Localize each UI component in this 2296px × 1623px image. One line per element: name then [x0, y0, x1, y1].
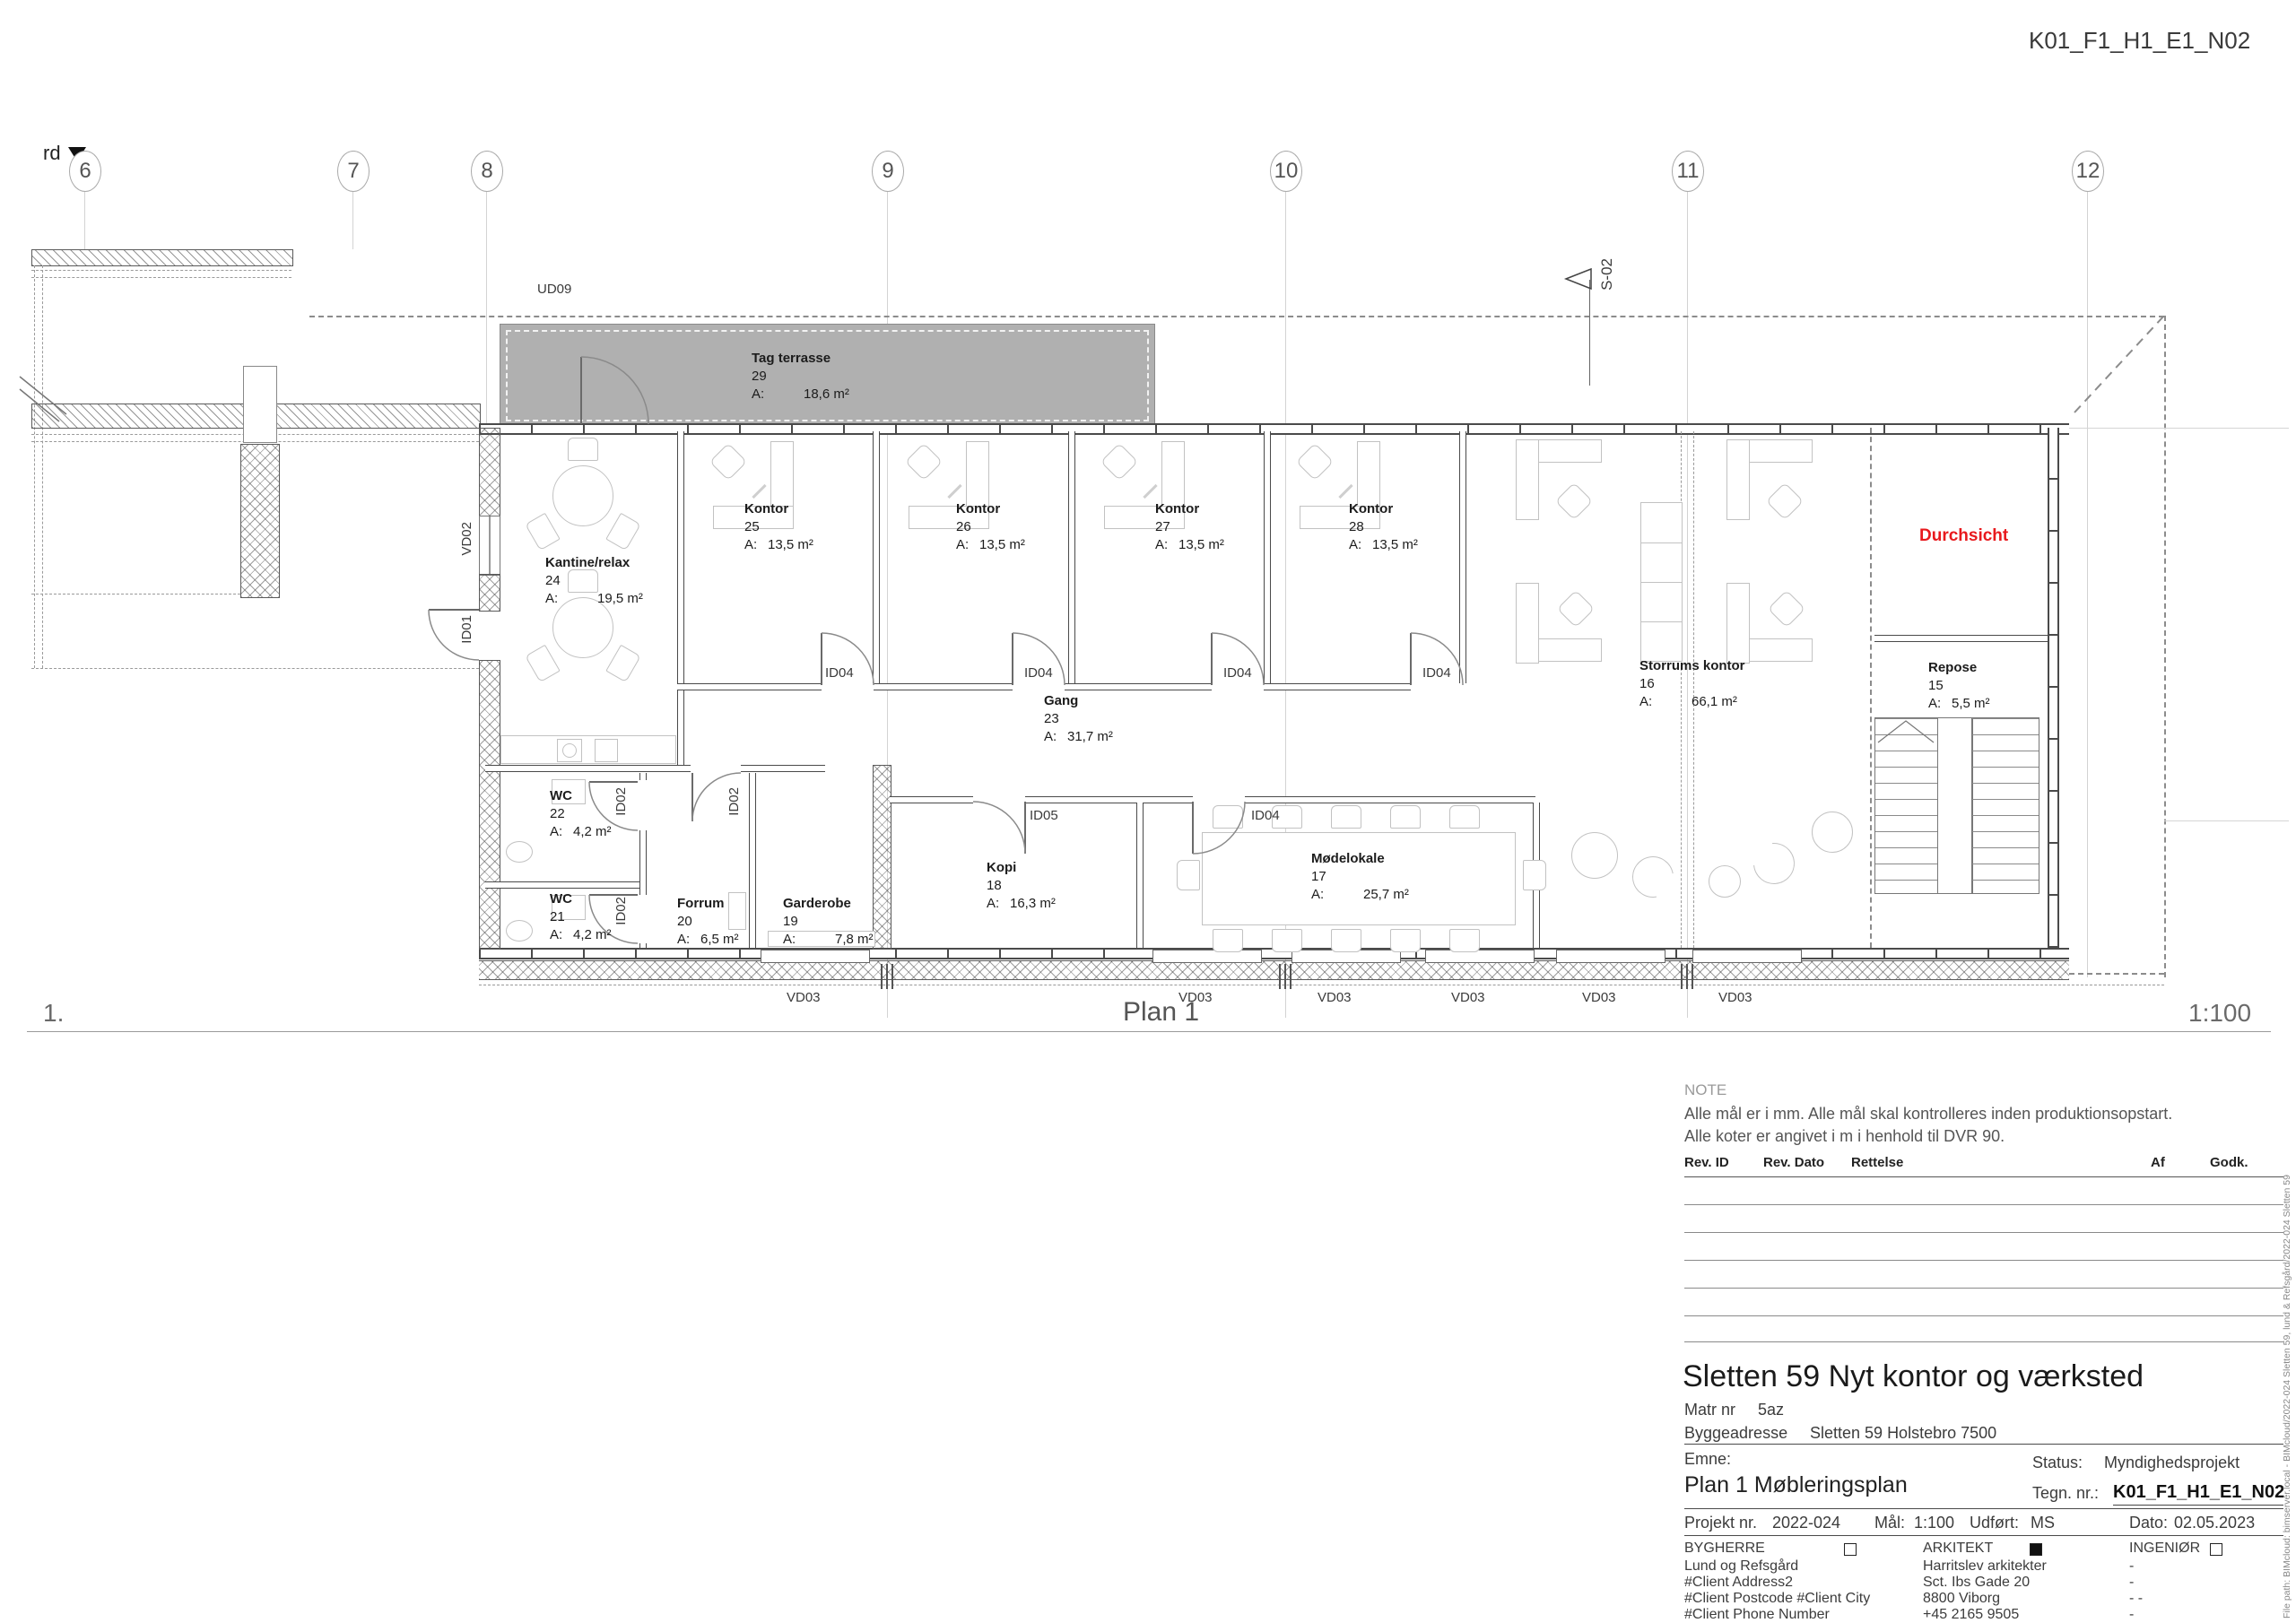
chair	[1523, 860, 1546, 890]
keyboard	[752, 484, 766, 499]
udfoert-label: Udført:	[1970, 1514, 2019, 1532]
room-label-forrum: Forrum 20 A:6,5 m²	[677, 895, 739, 949]
grid-line-right-b	[2164, 820, 2289, 821]
door-tag-vd03-6: VD03	[1718, 990, 1752, 1005]
wall-offices-front-2	[874, 683, 1013, 690]
office-chair	[1557, 590, 1595, 628]
grid-bubble-6: 6	[69, 151, 101, 192]
sheet-index: 1.	[43, 999, 64, 1028]
chair	[1177, 860, 1200, 890]
stairs-right-flight	[1971, 717, 2039, 894]
desk	[1726, 583, 1750, 664]
lounge-chair	[1624, 848, 1682, 906]
office-chair	[1768, 590, 1805, 628]
keyboard	[1338, 484, 1352, 499]
section-marker-line	[1589, 280, 1590, 386]
lounge-pouf	[1571, 832, 1618, 879]
office-chair	[1100, 443, 1138, 481]
chair	[1390, 929, 1421, 952]
grid-line-11	[1687, 190, 1688, 1018]
room-label-kopi: Kopi 18 A:16,3 m²	[987, 859, 1056, 913]
room-label-kontor-28: Kontor 28 A:13,5 m²	[1349, 500, 1418, 554]
status-label: Status:	[2032, 1454, 2083, 1472]
party-line: +45 2165 9505	[1923, 1607, 2019, 1623]
roof-outline-right	[2164, 316, 2166, 977]
wall-west-c	[479, 660, 500, 950]
room-label-moedelokale: Mødelokale 17 A:25,7 m²	[1311, 850, 1409, 904]
rev-header-dato: Rev. Dato	[1763, 1155, 1824, 1170]
toilet	[506, 920, 533, 942]
grid-line-right-a	[2069, 428, 2289, 429]
wall-offices-front-1	[677, 683, 822, 690]
note-line-2: Alle koter er angivet i m i henhold til …	[1684, 1127, 2005, 1146]
wall-grid9-core	[873, 765, 891, 950]
window-vd03-6	[1692, 950, 1802, 963]
party-line: -	[2129, 1607, 2134, 1623]
room-label-kontor-27: Kontor 27 A:13,5 m²	[1155, 500, 1224, 554]
door-tag-id04-3: ID04	[1223, 665, 1252, 681]
drawing-sheet: K01_F1_H1_E1_N02 rd 6 7 8 9 10 11 12 S-0…	[0, 0, 2296, 1623]
wall-kopi-top-1	[890, 796, 973, 803]
door-tag-id02-1: ID02	[613, 787, 629, 816]
existing-wall-west-a	[34, 265, 35, 668]
party-role-ingenioer: INGENIØR	[2129, 1541, 2200, 1557]
rev-row-rule	[1684, 1260, 2283, 1261]
byggeadresse-label: Byggeadresse	[1684, 1424, 1787, 1443]
stairs-landing	[1937, 717, 1973, 894]
window-vd03-4	[1425, 950, 1535, 963]
chair	[1272, 929, 1302, 952]
matr-label: Matr nr	[1684, 1401, 1735, 1419]
party-line: Sct. Ibs Gade 20	[1923, 1575, 2030, 1591]
roof-outline-bottom-right	[2069, 973, 2164, 975]
door-tag-id01: ID01	[459, 615, 474, 644]
wall-west-a	[479, 428, 500, 517]
checkbox-empty-icon	[2210, 1543, 2222, 1556]
checkbox-filled-icon	[2030, 1543, 2042, 1556]
grid-line-12	[2087, 190, 2088, 977]
sheet-scale: 1:100	[2188, 999, 2251, 1028]
door-tag-vd03-1: VD03	[787, 990, 821, 1005]
wall-wc-top-2	[741, 765, 825, 772]
desk	[1726, 439, 1750, 520]
udfoert-value: MS	[2031, 1514, 2055, 1532]
title-block-rule-2	[1684, 1508, 2283, 1509]
party-line: #Client Address2	[1684, 1575, 1793, 1591]
tegn-value: K01_F1_H1_E1_N02	[2113, 1482, 2284, 1503]
wall-wc-east-a	[639, 773, 647, 780]
party-line: -	[2129, 1575, 2134, 1591]
grid-stub-11	[1681, 964, 1693, 989]
door-tag-vd03-3: VD03	[1318, 990, 1352, 1005]
keyboard	[947, 484, 961, 499]
grid-bubble-9: 9	[872, 151, 904, 192]
roof-outline-corner	[2074, 316, 2164, 414]
chair	[1331, 805, 1361, 829]
room-label-kontor-26: Kontor 26 A:13,5 m²	[956, 500, 1025, 554]
door-tag-vd03-4: VD03	[1451, 990, 1485, 1005]
party-line: Harritslev arkitekter	[1923, 1558, 2047, 1575]
title-block-rule-3	[1684, 1535, 2283, 1536]
room-label-gang: Gang 23 A:31,7 m²	[1044, 692, 1113, 746]
section-marker-label: S-02	[1598, 258, 1616, 291]
status-value: Myndighedsprojekt	[2104, 1454, 2239, 1472]
partition-k25-k26	[873, 431, 880, 683]
title-block-rule-1	[1684, 1444, 2283, 1445]
office-chair	[709, 443, 747, 481]
wall-durchsicht-repose	[1874, 635, 2048, 642]
room-label-kontor-25: Kontor 25 A:13,5 m²	[744, 500, 813, 554]
desk	[1516, 439, 1539, 520]
rev-header-af: Af	[2151, 1155, 2165, 1170]
toilet	[506, 841, 533, 863]
grid-stub-9	[881, 964, 893, 989]
door-tag-id04-2: ID04	[1024, 665, 1053, 681]
existing-wall-west-b	[42, 265, 43, 668]
wall-offices-front-4	[1264, 683, 1411, 690]
rev-header-rettelse: Rettelse	[1851, 1155, 1903, 1170]
section-marker-icon	[1566, 269, 1593, 291]
maal-label: Mål:	[1874, 1514, 1905, 1532]
chair	[1213, 929, 1243, 952]
room-label-storrums: Storrums kontor 16 A:66,1 m²	[1639, 657, 1745, 711]
office-chair	[1766, 482, 1804, 520]
byggeadresse-value: Sletten 59 Holstebro 7500	[1810, 1424, 1996, 1443]
grid-line-8	[486, 190, 487, 423]
rev-header-rule	[1684, 1176, 2283, 1177]
door-tag-id02-2: ID02	[726, 787, 742, 816]
stairs-direction-icon	[1874, 717, 1937, 744]
door-tag-vd02: VD02	[459, 522, 474, 556]
chair	[568, 438, 598, 461]
wall-durchsicht-west	[1870, 428, 1872, 948]
party-line: Lund og Refsgård	[1684, 1558, 1798, 1575]
partition-k26-k27	[1068, 431, 1075, 683]
party-line: #Client Postcode #Client City	[1684, 1591, 1870, 1607]
chair	[1331, 929, 1361, 952]
room-label-repose: Repose 15 A:5,5 m²	[1928, 659, 1990, 713]
party-line: #Client Phone Number	[1684, 1607, 1830, 1623]
grid-bubble-10: 10	[1270, 151, 1302, 192]
project-title: Sletten 59 Nyt kontor og værksted	[1683, 1359, 2144, 1394]
party-role-bygherre: BYGHERRE	[1684, 1541, 1765, 1557]
wall-offices-front-3	[1065, 683, 1212, 690]
lounge-chair	[1745, 835, 1804, 893]
door-arc-id04-moede	[1193, 802, 1245, 854]
wall-wc-top-1	[485, 765, 691, 772]
door-tag-id04-moede: ID04	[1251, 808, 1280, 823]
rev-header-id: Rev. ID	[1684, 1155, 1729, 1170]
terrace-door-arc	[581, 357, 648, 424]
office-chair	[1555, 482, 1593, 520]
durchsicht-label: Durchsicht	[1919, 527, 2008, 545]
emne-value: Plan 1 Møbleringsplan	[1684, 1472, 1908, 1498]
door-arc-id05	[973, 802, 1025, 854]
chair	[525, 513, 561, 551]
note-line-1: Alle mål er i mm. Alle mål skal kontroll…	[1684, 1105, 2172, 1124]
maal-value: 1:100	[1914, 1514, 1954, 1532]
party-line: 8800 Viborg	[1923, 1591, 2000, 1607]
room-label-tag-terrasse: Tag terrasse 29 A:18,6 m²	[752, 350, 849, 404]
tegn-label: Tegn. nr.:	[2032, 1484, 2099, 1503]
file-path-label: File path: BIMcloud: bimserver.local - B…	[2282, 1040, 2292, 1619]
grid-bubble-12: 12	[2072, 151, 2104, 192]
party-line: -	[2129, 1558, 2134, 1575]
existing-inner-edge	[31, 594, 240, 595]
south-ground-hatch	[479, 960, 2069, 980]
office-chair	[1296, 443, 1334, 481]
matr-value: 5az	[1758, 1401, 1784, 1419]
existing-dash-a	[31, 270, 291, 271]
projekt-value: 2022-024	[1772, 1514, 1840, 1532]
wall-kopi-moede	[1136, 803, 1144, 948]
wall-wc-east-c	[639, 943, 647, 948]
chair	[605, 645, 641, 682]
door-tag-id05: ID05	[1030, 808, 1058, 823]
kitchen-counter	[500, 735, 676, 764]
wall-east	[2048, 428, 2059, 948]
rev-row-rule	[1684, 1315, 2283, 1316]
wall-wc-divider	[485, 881, 642, 889]
drawing-number: K01_F1_H1_E1_N02	[2029, 27, 2250, 55]
tegn-underline	[2113, 1505, 2283, 1506]
door-tag-id04-1: ID04	[825, 665, 854, 681]
room-label-kantine: Kantine/relax 24 A:19,5 m²	[545, 554, 643, 608]
window-vd03-5	[1556, 950, 1665, 963]
rev-row-rule	[1684, 1232, 2283, 1233]
door-tag-id02-3: ID02	[613, 897, 629, 925]
grid-bubble-11: 11	[1672, 151, 1704, 192]
window-vd03-2	[1152, 950, 1262, 963]
wall-north	[479, 423, 2069, 435]
office-chair	[905, 443, 943, 481]
wall-kopi-top-2	[1025, 796, 1193, 803]
lounge-pouf	[1812, 811, 1853, 853]
glazing-mark-icon	[20, 377, 66, 434]
partition-k27-k28	[1264, 431, 1271, 683]
door-tag-vd03-5: VD03	[1582, 990, 1616, 1005]
chair	[1449, 929, 1480, 952]
door-tag-ud09: UD09	[537, 282, 571, 297]
wall-west-b	[479, 574, 500, 612]
cabinet-row	[1640, 502, 1683, 662]
grid-stub-10	[1279, 964, 1291, 989]
coffee-table	[1709, 865, 1741, 898]
note-title: NOTE	[1684, 1081, 1726, 1099]
chair	[525, 645, 561, 682]
party-line: - -	[2129, 1591, 2143, 1607]
rev-row-rule	[1684, 1341, 2283, 1342]
rd-marker-label: rd	[43, 142, 61, 165]
partition-kantine-k25	[677, 431, 684, 765]
door-tag-vd03-2: VD03	[1178, 990, 1213, 1005]
grid-bubble-7: 7	[337, 151, 370, 192]
existing-stair-wall	[240, 444, 280, 598]
link-south-edge	[31, 668, 479, 669]
link-shaft	[243, 366, 277, 443]
existing-wall-north	[31, 249, 293, 266]
wall-wc-east-b	[639, 830, 647, 895]
wall-forrum-garderobe	[749, 773, 756, 948]
sheet-divider	[27, 1031, 2271, 1032]
room-label-wc22: WC 22 A:4,2 m²	[550, 787, 612, 841]
grid-line-6	[84, 190, 85, 249]
chair	[605, 513, 641, 551]
door-tag-id04-4: ID04	[1422, 665, 1451, 681]
checkbox-empty-icon	[1844, 1543, 1857, 1556]
existing-dash-b	[31, 277, 291, 278]
south-dash	[479, 985, 2164, 985]
window-vd03-1	[761, 950, 870, 963]
emne-label: Emne:	[1684, 1450, 1731, 1469]
party-role-arkitekt: ARKITEKT	[1923, 1541, 1993, 1557]
grid-line-7	[352, 190, 353, 249]
dato-label: Dato:	[2129, 1514, 2168, 1532]
rev-header-godk: Godk.	[2210, 1155, 2248, 1170]
roof-outline-top	[309, 316, 2164, 317]
room-label-garderobe: Garderobe 19 A:7,8 m²	[783, 895, 874, 949]
wall-moede-top	[1245, 796, 1535, 803]
chair	[1390, 805, 1421, 829]
dato-value: 02.05.2023	[2174, 1514, 2255, 1532]
grid-bubble-8: 8	[471, 151, 503, 192]
desk	[1516, 583, 1539, 664]
keyboard	[1143, 484, 1157, 499]
rev-row-rule	[1684, 1204, 2283, 1205]
room-label-wc21: WC 21 A:4,2 m²	[550, 890, 612, 944]
rev-row-rule	[1684, 1288, 2283, 1289]
round-table	[552, 465, 613, 526]
chair	[1449, 805, 1480, 829]
projekt-label: Projekt nr.	[1684, 1514, 1757, 1532]
window-vd02	[479, 516, 500, 576]
